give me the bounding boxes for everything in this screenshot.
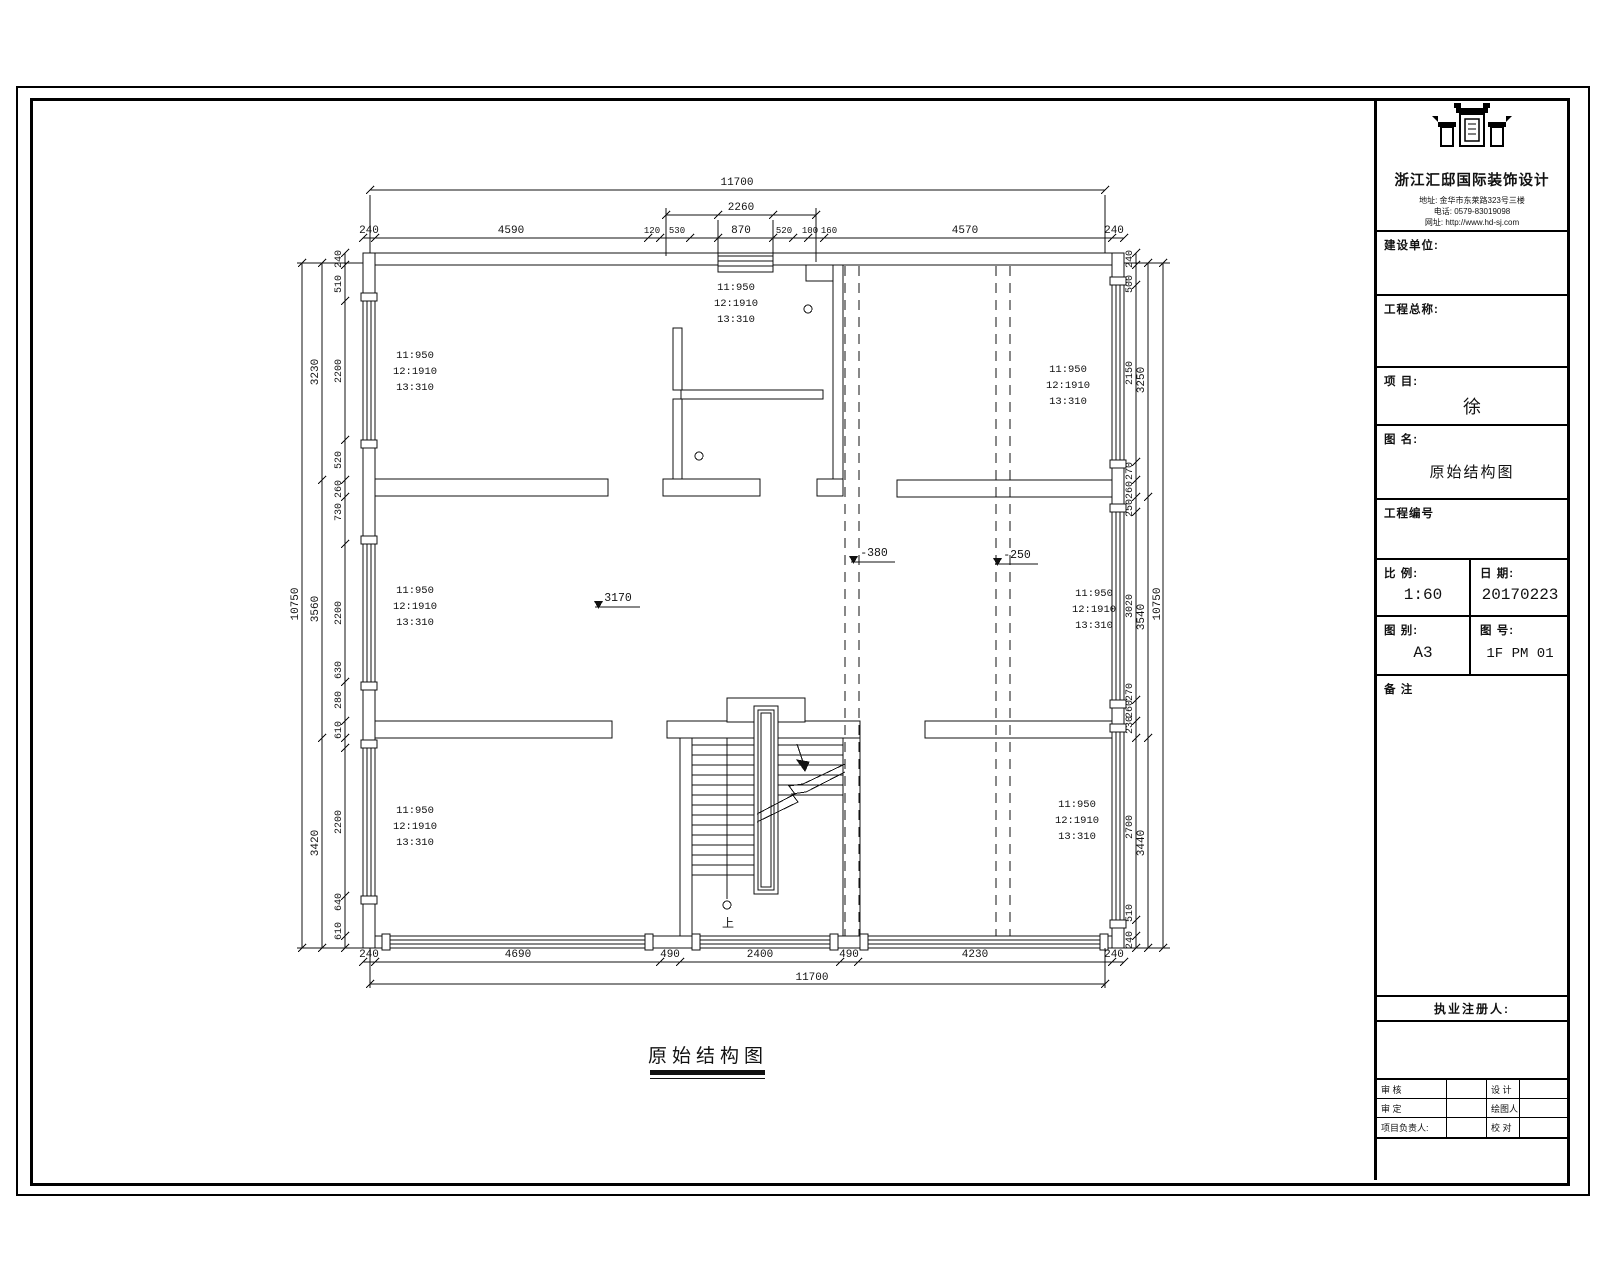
dim-label: 520 <box>776 226 792 236</box>
level-triangle-icon <box>993 558 1002 566</box>
dim-label: 2700 <box>1125 815 1136 839</box>
bottom-space <box>1377 1139 1567 1180</box>
project-no-section: 工程编号 <box>1377 500 1567 560</box>
window-note-line: 12:1910 <box>393 821 437 833</box>
dim-label: 240 <box>359 949 379 961</box>
dashed-beam-lines <box>845 266 1010 936</box>
dim-label: 510 <box>334 275 345 293</box>
scale-label: 比 例: <box>1377 560 1469 581</box>
dim-label: 240 <box>1104 225 1124 237</box>
level-value: -250 <box>1003 549 1031 562</box>
level-markers: 3170 -380 -250 <box>594 547 1038 609</box>
title-block: 浙江汇邸国际装饰设计 地址: 金华市东莱路323号三楼 电话: 0579-830… <box>1374 98 1567 1180</box>
stair-direction-label: 上 <box>722 916 734 930</box>
review-label: 审 核 <box>1377 1080 1447 1099</box>
dim-label: 2150 <box>1125 361 1136 385</box>
dim-label: 240 <box>1125 250 1136 268</box>
dim-label: 530 <box>669 226 685 236</box>
proofread-label: 校 对 <box>1487 1118 1520 1137</box>
project-title-label: 工程总称: <box>1377 296 1567 317</box>
dim-label: 160 <box>821 226 837 236</box>
signature-table: 审 核 设 计 审 定 绘图人 项目负责人: 校 对 <box>1377 1080 1567 1139</box>
sheet-type-label: 图 别: <box>1377 617 1469 638</box>
dim-label: 730 <box>334 503 345 521</box>
dim-label: 240 <box>359 225 379 237</box>
registrant-label: 执业注册人: <box>1434 1000 1510 1017</box>
window-note-line: 11:950 <box>1075 588 1113 600</box>
dim-label: 2260 <box>728 202 754 214</box>
dim-label: 270 <box>1125 683 1136 701</box>
dim-label: 490 <box>660 949 680 961</box>
drain-symbols <box>695 305 812 460</box>
sheet-type-value: A3 <box>1377 644 1469 662</box>
drawing-name-label: 图 名: <box>1377 426 1567 447</box>
company-section: 浙江汇邸国际装饰设计 地址: 金华市东莱路323号三楼 电话: 0579-830… <box>1377 98 1567 232</box>
dim-label: 10750 <box>1152 587 1164 620</box>
project-label: 项 目: <box>1377 368 1567 389</box>
registrant-space <box>1377 1022 1567 1080</box>
dim-label: 240 <box>334 250 345 268</box>
sheet-no-label: 图 号: <box>1473 617 1567 638</box>
dim-label: 280 <box>334 691 345 709</box>
window-note-line: 13:310 <box>1049 396 1087 408</box>
sheet-no-cell: 图 号: 1F PM 01 <box>1473 617 1567 674</box>
floor-plan-canvas: 11700 2260 240 4590 120 530 870 520 100 … <box>0 0 1600 1280</box>
windows <box>361 256 1126 950</box>
sheet-type-cell: 图 别: A3 <box>1377 617 1471 674</box>
dim-label: 4590 <box>498 225 524 237</box>
proofread-value <box>1520 1118 1567 1137</box>
dim-label: 10750 <box>290 587 302 620</box>
dim-label: 4570 <box>952 225 978 237</box>
window-note-line: 12:1910 <box>393 601 437 613</box>
dim-label: 240 <box>1125 931 1136 949</box>
dim-label: 2200 <box>334 601 345 625</box>
stair-start-circle <box>723 901 731 909</box>
window-note-line: 13:310 <box>396 382 434 394</box>
company-phone: 电话: 0579-83019098 <box>1377 206 1567 217</box>
dim-label: 3560 <box>310 596 322 622</box>
window-note-line: 13:310 <box>396 617 434 629</box>
dim-label: 500 <box>1125 275 1136 293</box>
company-logo <box>1377 102 1567 165</box>
date-value: 20170223 <box>1473 586 1567 604</box>
window-note-line: 11:950 <box>1058 799 1096 811</box>
window-note-line: 11:950 <box>396 585 434 597</box>
window-note-line: 11:950 <box>1049 364 1087 376</box>
plan-caption-text: 原始结构图 <box>648 1045 768 1067</box>
registrant-bar: 执业注册人: <box>1377 997 1567 1022</box>
review-value <box>1447 1080 1487 1099</box>
dim-label: 4690 <box>505 949 531 961</box>
dim-label: 2400 <box>747 949 773 961</box>
level-value: 3170 <box>604 592 632 605</box>
drain-circle-icon <box>695 452 703 460</box>
caption-underline <box>650 1070 765 1075</box>
date-label: 日 期: <box>1473 560 1567 581</box>
dim-label: 3540 <box>1136 604 1148 630</box>
dim-label: 240 <box>1104 949 1124 961</box>
window-note-line: 11:950 <box>396 350 434 362</box>
dim-label: 490 <box>839 949 859 961</box>
dim-label: 3230 <box>310 359 322 385</box>
dim-label: 3020 <box>1125 594 1136 618</box>
drawing-name-section: 图 名: 原始结构图 <box>1377 426 1567 500</box>
scale-value: 1:60 <box>1377 586 1469 604</box>
dim-label: 2200 <box>334 810 345 834</box>
gate-logo-icon <box>1426 102 1518 160</box>
window-note-line: 11:950 <box>396 805 434 817</box>
scale-date-section: 比 例: 1:60 日 期: 20170223 <box>1377 560 1567 617</box>
dim-label: 3420 <box>310 830 322 856</box>
design-label: 设 计 <box>1487 1080 1520 1099</box>
company-website: 网址: http://www.hd-sj.com <box>1377 217 1567 228</box>
draftsman-value <box>1520 1099 1567 1118</box>
dim-label: 260 <box>1125 481 1136 499</box>
sheet-type-no-section: 图 别: A3 图 号: 1F PM 01 <box>1377 617 1567 676</box>
sheet-no-value: 1F PM 01 <box>1473 646 1567 662</box>
date-cell: 日 期: 20170223 <box>1473 560 1567 615</box>
window-note-line: 12:1910 <box>1046 380 1090 392</box>
dim-label: 630 <box>334 661 345 679</box>
dim-label: 610 <box>334 721 345 739</box>
caption-underline-thin <box>650 1078 765 1079</box>
window-note-line: 11:950 <box>717 282 755 294</box>
dim-label: 260 <box>1125 700 1136 718</box>
stair-rail <box>754 706 778 894</box>
dim-label: 520 <box>334 451 345 469</box>
owner-section: 建设单位: <box>1377 232 1567 296</box>
company-contact: 地址: 金华市东莱路323号三楼 电话: 0579-83019098 网址: h… <box>1377 195 1567 228</box>
remarks-label: 备 注 <box>1377 676 1567 697</box>
drain-circle-icon <box>804 305 812 313</box>
dim-label: 4230 <box>962 949 988 961</box>
window-note-line: 12:1910 <box>393 366 437 378</box>
dim-label: 270 <box>1125 462 1136 480</box>
pm-value <box>1447 1118 1487 1137</box>
project-value: 徐 <box>1377 393 1567 419</box>
level-triangle-icon <box>594 601 603 609</box>
dim-label: 100 <box>802 226 818 236</box>
stair-treads-lower <box>692 805 754 875</box>
window-note-line: 12:1910 <box>1055 815 1099 827</box>
dim-label: 11700 <box>795 972 828 984</box>
dim-label: 3440 <box>1136 830 1148 856</box>
project-title-section: 工程总称: <box>1377 296 1567 368</box>
dim-label: 640 <box>334 893 345 911</box>
dim-label: 2200 <box>334 359 345 383</box>
drawing-name-value: 原始结构图 <box>1377 461 1567 482</box>
company-address: 地址: 金华市东莱路323号三楼 <box>1377 195 1567 206</box>
project-no-label: 工程编号 <box>1377 500 1567 521</box>
plan-caption: 原始结构图 <box>648 1045 768 1079</box>
window-note-line: 13:310 <box>1058 831 1096 843</box>
project-section: 项 目: 徐 <box>1377 368 1567 426</box>
dim-label: 510 <box>1125 904 1136 922</box>
level-triangle-icon <box>849 556 858 564</box>
design-value <box>1520 1080 1567 1099</box>
window-note-line: 13:310 <box>1075 620 1113 632</box>
dim-label: 3250 <box>1136 367 1148 393</box>
owner-label: 建设单位: <box>1377 232 1567 253</box>
dim-label: 120 <box>644 226 660 236</box>
window-note-line: 13:310 <box>396 837 434 849</box>
dim-label: 230 <box>1125 716 1136 734</box>
dim-label: 870 <box>731 225 751 237</box>
dim-label: 250 <box>1125 499 1136 517</box>
approve-value <box>1447 1099 1487 1118</box>
window-note-line: 12:1910 <box>714 298 758 310</box>
dim-label: 610 <box>334 922 345 940</box>
drawing-sheet: 11700 2260 240 4590 120 530 870 520 100 … <box>0 0 1600 1280</box>
pm-label: 项目负责人: <box>1377 1118 1447 1137</box>
remarks-section: 备 注 <box>1377 676 1567 997</box>
dim-label: 11700 <box>720 177 753 189</box>
company-name: 浙江汇邸国际装饰设计 <box>1377 169 1567 190</box>
scale-cell: 比 例: 1:60 <box>1377 560 1471 615</box>
approve-label: 审 定 <box>1377 1099 1447 1118</box>
window-note-line: 13:310 <box>717 314 755 326</box>
window-note-line: 12:1910 <box>1072 604 1116 616</box>
draftsman-label: 绘图人 <box>1487 1099 1520 1118</box>
level-value: -380 <box>860 547 888 560</box>
dim-label: 260 <box>334 480 345 498</box>
